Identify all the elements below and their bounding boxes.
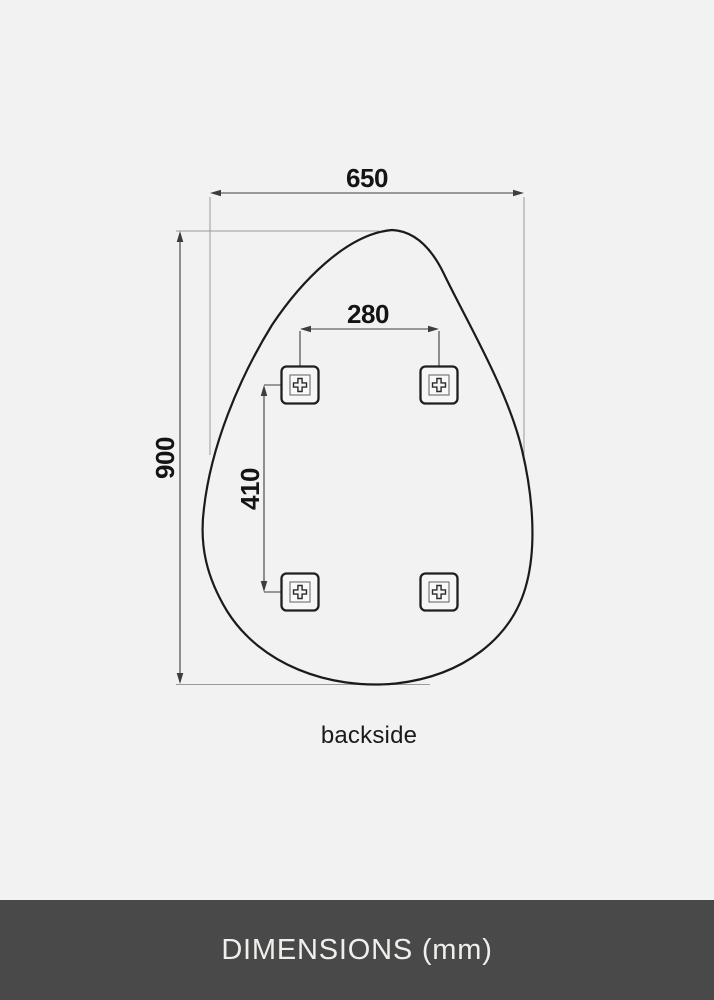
mirror-dimension-diagram [0, 0, 714, 900]
arrowhead-up [177, 231, 184, 242]
mount-brackets [282, 367, 458, 611]
arrowhead-left [210, 190, 221, 197]
dimension-bracket-span-y-label: 410 [237, 465, 263, 513]
arrowhead-left [300, 326, 311, 333]
dimension-height-label: 900 [152, 434, 178, 482]
arrowhead-down [177, 673, 184, 684]
arrowhead-right [428, 326, 439, 333]
arrowhead-down [261, 581, 268, 592]
footer-bar: DIMENSIONS (mm) [0, 900, 714, 1000]
footer-title: DIMENSIONS (mm) [221, 936, 492, 965]
drawing-area: 650 900 280 410 backside [0, 0, 714, 900]
mount-bracket-top-left [282, 367, 319, 404]
backside-caption: backside [321, 724, 417, 748]
arrowhead-right [513, 190, 524, 197]
dimension-bracket-span-x-label: 280 [344, 301, 392, 327]
dimension-bracket-span-280 [300, 326, 439, 366]
mount-bracket-top-right [421, 367, 458, 404]
dimension-drawing-page: 650 900 280 410 backside DIMENSIONS (mm) [0, 0, 714, 1000]
dimension-width-label: 650 [343, 165, 391, 191]
mount-bracket-bottom-right [421, 574, 458, 611]
mount-bracket-bottom-left [282, 574, 319, 611]
arrowhead-up [261, 385, 268, 396]
